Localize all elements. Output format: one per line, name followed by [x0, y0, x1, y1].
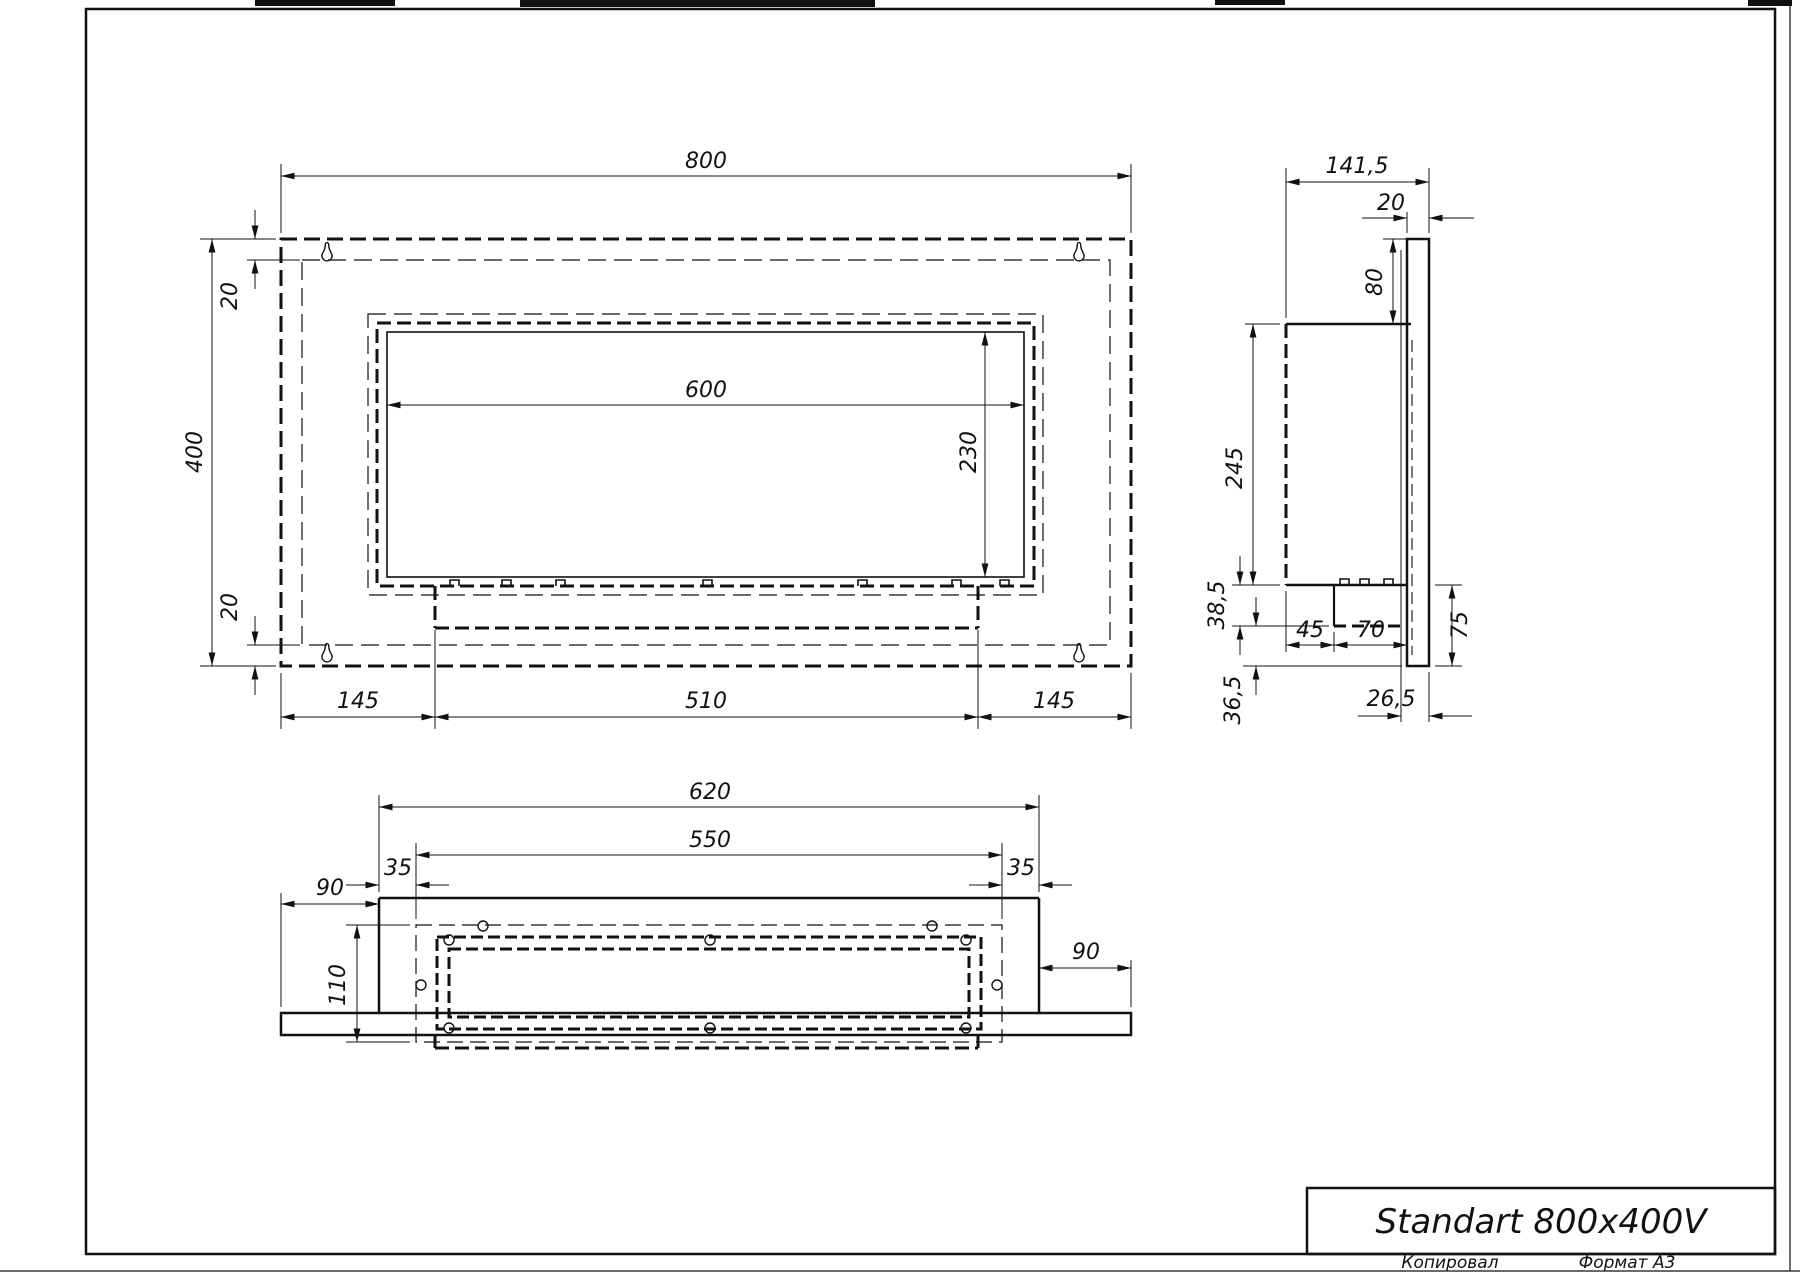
border-frame [86, 9, 1775, 1254]
side-bottom-offset-label: 36,5 [1221, 676, 1246, 725]
side-plate-thickness-label: 20 [1377, 191, 1405, 216]
keyhole-mark [1074, 644, 1084, 662]
keyhole-mark [322, 243, 332, 261]
front-right-margin-label: 145 [1033, 689, 1075, 714]
front-opening-frame-dashed [377, 323, 1034, 586]
bottom-dim-90-right [1039, 960, 1131, 1007]
bottom-dim-550 [416, 843, 1002, 919]
front-opening-width-label: 600 [685, 378, 727, 403]
side-tray-height-label: 38,5 [1205, 581, 1230, 630]
bottom-opening-inner-dashed [449, 949, 969, 1017]
bottom-left-flange-label: 90 [316, 876, 344, 901]
sheet-frame [0, 0, 1800, 1271]
front-height-label: 400 [183, 431, 208, 473]
bottom-opening-frame-dashed [437, 937, 981, 1029]
bottom-opening-outer-dashed [416, 925, 1002, 1042]
side-dim-36-5 [1243, 597, 1402, 695]
bottom-body-width-label: 620 [689, 780, 731, 805]
side-depth-label: 141,5 [1326, 154, 1389, 179]
side-bottom-flange-label: 75 [1448, 611, 1473, 639]
bottom-opening-width-label: 550 [689, 828, 731, 853]
bottom-left-margin-label: 35 [384, 856, 412, 881]
keyhole-mark [1074, 243, 1084, 261]
front-dim-20-top [247, 210, 300, 289]
side-view: 141,5 20 80 245 38,5 36,5 45 70 75 26,5 [1205, 154, 1474, 724]
side-top-offset-label: 80 [1363, 268, 1388, 296]
front-burner-tray [435, 586, 978, 628]
front-top-margin-label: 20 [218, 282, 243, 310]
front-left-margin-label: 145 [337, 689, 379, 714]
side-tray-depth-label: 70 [1357, 618, 1385, 643]
front-opening-window [387, 332, 1024, 577]
front-view: 800 400 20 20 600 230 145 510 145 [183, 149, 1131, 729]
side-back-plate [1407, 239, 1429, 666]
bottom-opening-depth-label: 110 [326, 964, 351, 1006]
front-bottom-margin-label: 20 [218, 593, 243, 621]
drawing-sheet: 800 400 20 20 600 230 145 510 145 [0, 0, 1800, 1273]
front-burner-width-label: 510 [685, 689, 727, 714]
bottom-view: 620 550 35 35 90 110 90 [281, 780, 1131, 1048]
bottom-right-flange-label: 90 [1072, 940, 1100, 965]
side-body-height-label: 245 [1223, 447, 1248, 489]
bottom-right-margin-label: 35 [1007, 856, 1035, 881]
side-back-offset-label: 26,5 [1367, 687, 1416, 712]
front-dim-20-bottom [247, 616, 300, 695]
front-opening-outer-dashed [368, 314, 1043, 595]
front-opening-height-label: 230 [957, 431, 982, 473]
drawing-title: Standart 800x400V [1375, 1202, 1709, 1242]
front-width-label: 800 [685, 149, 727, 174]
side-tray-offset-label: 45 [1296, 618, 1324, 643]
scan-artifacts [255, 0, 1792, 7]
front-dim-800 [281, 164, 1131, 233]
technical-drawing: 800 400 20 20 600 230 145 510 145 [0, 0, 1800, 1273]
title-block: Standart 800x400V Копировал Формат А3 [1307, 1188, 1775, 1273]
front-outer-plate-outline [281, 239, 1131, 666]
stamp-format-label: Формат А3 [1579, 1253, 1676, 1273]
keyhole-mark [322, 644, 332, 662]
stamp-copied-label: Копировал [1401, 1253, 1498, 1273]
